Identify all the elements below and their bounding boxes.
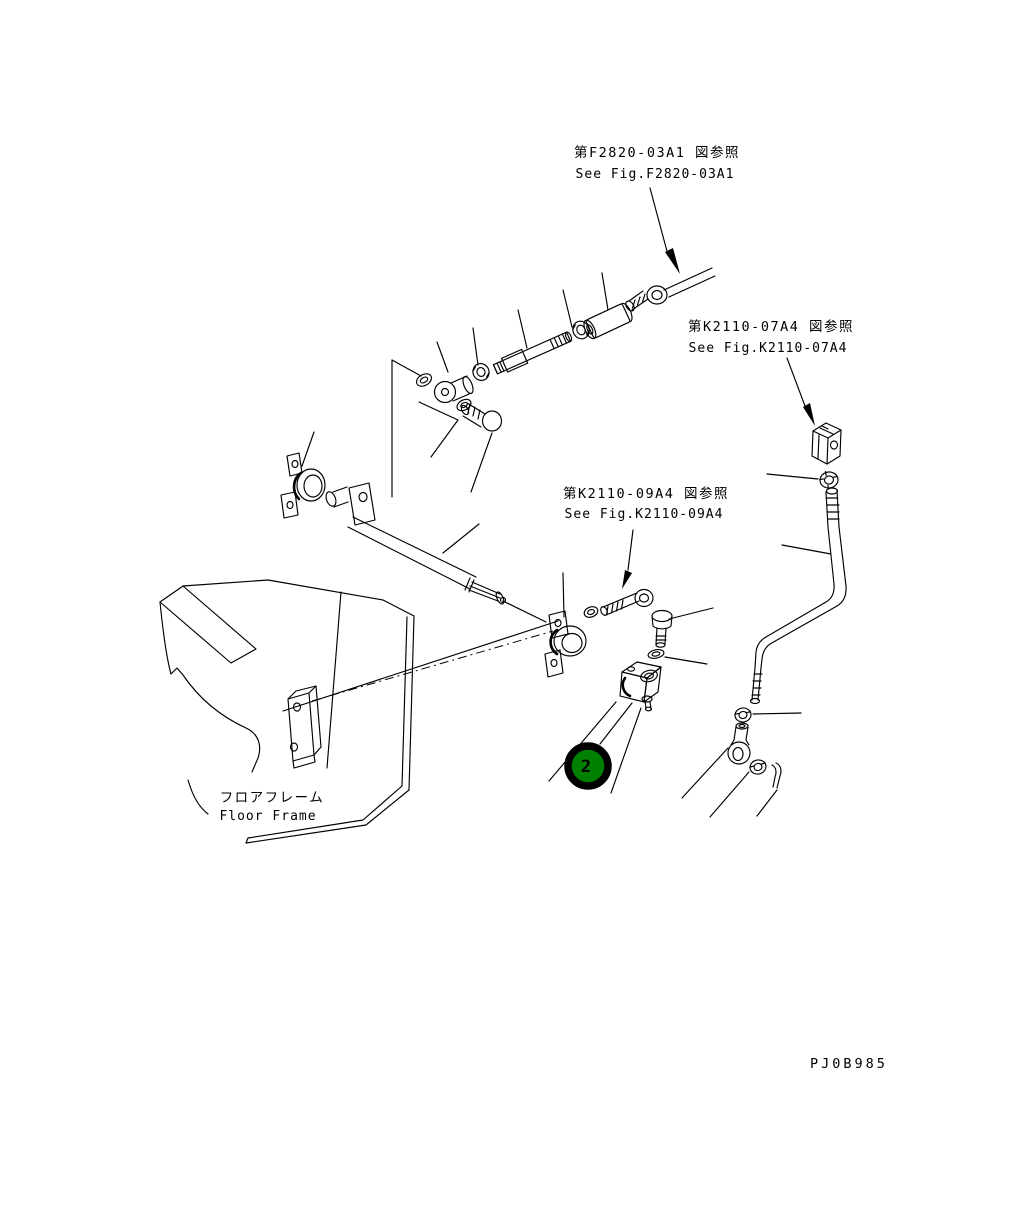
fig-ref-3-jp[interactable]: 第K2110-09A4 図参照: [563, 485, 729, 502]
callout-2-balloon[interactable]: 2: [568, 746, 608, 786]
fig-ref-3-arrow: [622, 530, 633, 589]
rod-assembly: [392, 273, 634, 497]
nut-lower-1: [734, 707, 801, 723]
rod-end-lower: [728, 723, 750, 764]
cotter-pin: [772, 763, 781, 788]
washer-middle: [647, 648, 707, 664]
hex-bolt: [652, 608, 713, 647]
fig-ref-1-arrow: [650, 188, 680, 274]
fig-reference-k2110-07a4[interactable]: 第K2110-07A4 図参照 See Fig.K2110-07A4: [688, 318, 854, 426]
fig-reference-f2820-03a1[interactable]: 第F2820-03A1 図参照 See Fig.F2820-03A1: [574, 144, 740, 274]
bolt: [460, 403, 502, 431]
clamp-middle: [283, 573, 586, 711]
nut-upper-right: [767, 470, 839, 491]
fig-ref-1-en[interactable]: See Fig.F2820-03A1: [576, 167, 735, 182]
lever-shaft: [324, 483, 546, 622]
clamp-left: [281, 432, 325, 518]
nut-lower-2: [748, 758, 767, 776]
bolt-k2110-09a4: [583, 590, 653, 620]
floor-frame-label-jp: フロアフレーム: [220, 790, 325, 806]
floor-frame-label-en: Floor Frame: [219, 809, 316, 824]
control-cable: [624, 268, 715, 313]
bent-rod: [751, 488, 847, 704]
drawing-code: PJ0B985: [810, 1056, 888, 1072]
fig-ref-2-en[interactable]: See Fig.K2110-07A4: [689, 341, 848, 356]
clevis-yoke: [812, 423, 841, 464]
fig-ref-3-en[interactable]: See Fig.K2110-09A4: [565, 507, 724, 522]
floor-frame-label: フロアフレーム Floor Frame: [219, 790, 324, 824]
fig-ref-2-jp[interactable]: 第K2110-07A4 図参照: [688, 318, 854, 335]
diagram-canvas: 第F2820-03A1 図参照 See Fig.F2820-03A1 第K211…: [0, 0, 1029, 1217]
fig-reference-k2110-09a4[interactable]: 第K2110-09A4 図参照 See Fig.K2110-09A4: [563, 485, 729, 589]
fig-ref-2-arrow: [787, 358, 815, 426]
rod-end: [435, 375, 476, 402]
callout-2-number: 2: [581, 757, 591, 777]
fig-ref-1-jp[interactable]: 第F2820-03A1 図参照: [574, 144, 740, 161]
parts-diagram-page: 第F2820-03A1 図参照 See Fig.F2820-03A1 第K211…: [0, 0, 1029, 1217]
